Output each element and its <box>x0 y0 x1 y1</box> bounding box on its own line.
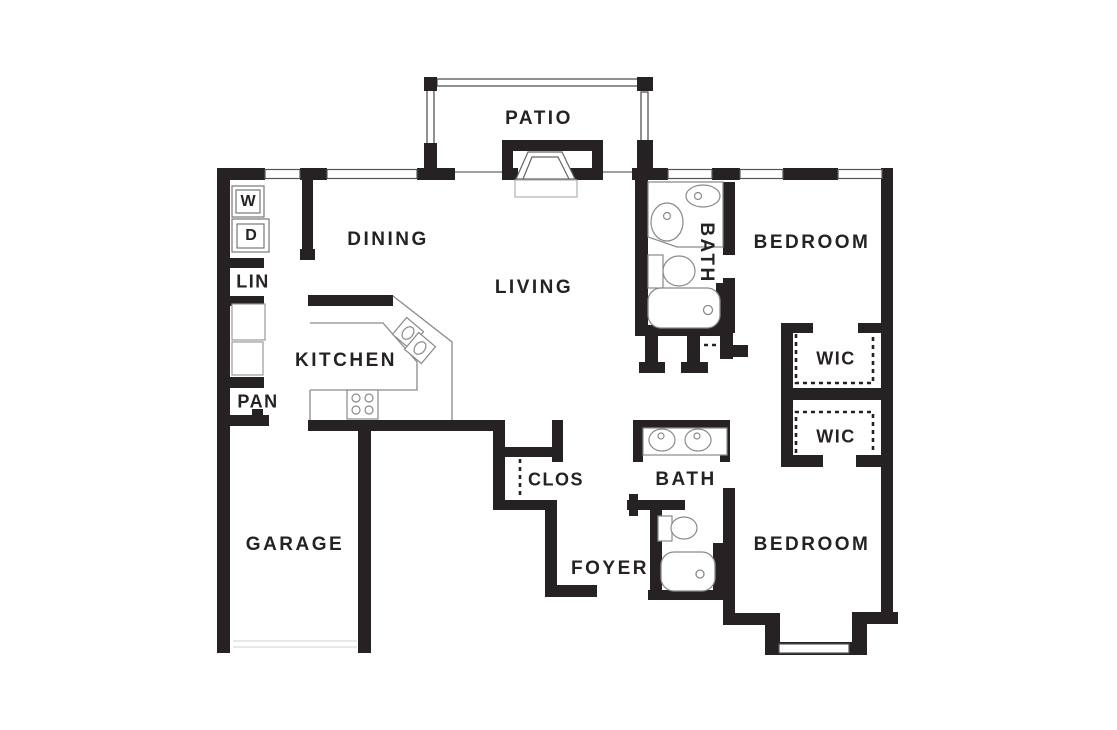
lower-bath-vanity <box>643 428 727 455</box>
dryer-label: D <box>245 227 257 245</box>
room-label-living: LIVING <box>495 277 573 299</box>
room-label-bath-upper: BATH <box>695 222 717 283</box>
lower-bath-tub <box>661 552 715 591</box>
room-label-kitchen: KITCHEN <box>295 350 397 372</box>
floorplan-canvas: PATIO DINING LIVING KITCHEN GARAGE FOYER… <box>0 0 1117 730</box>
room-label-closet: CLOS <box>528 470 584 491</box>
upper-bath-toilet <box>648 255 695 288</box>
room-label-pantry: PAN <box>237 392 278 413</box>
upper-bath-tub <box>648 288 720 328</box>
fireplace <box>502 140 603 197</box>
room-label-garage: GARAGE <box>246 534 344 556</box>
room-label-patio: PATIO <box>505 108 573 130</box>
room-label-dining: DINING <box>347 229 429 251</box>
room-label-foyer: FOYER <box>571 558 649 580</box>
bay-window <box>779 644 849 653</box>
linen-shelves <box>232 304 265 375</box>
garage-door <box>233 641 357 647</box>
lower-bath-toilet <box>658 516 697 541</box>
hearth <box>515 180 577 197</box>
room-label-linen: LIN <box>236 272 270 293</box>
stove <box>347 390 378 419</box>
room-label-bath-lower: BATH <box>655 469 716 491</box>
room-label-bedroom-lower: BEDROOM <box>754 534 871 556</box>
washer-label: W <box>240 193 255 211</box>
room-label-bedroom-upper: BEDROOM <box>754 232 871 254</box>
room-label-wic-lower: WIC <box>816 427 856 448</box>
room-label-wic-upper: WIC <box>816 349 856 370</box>
